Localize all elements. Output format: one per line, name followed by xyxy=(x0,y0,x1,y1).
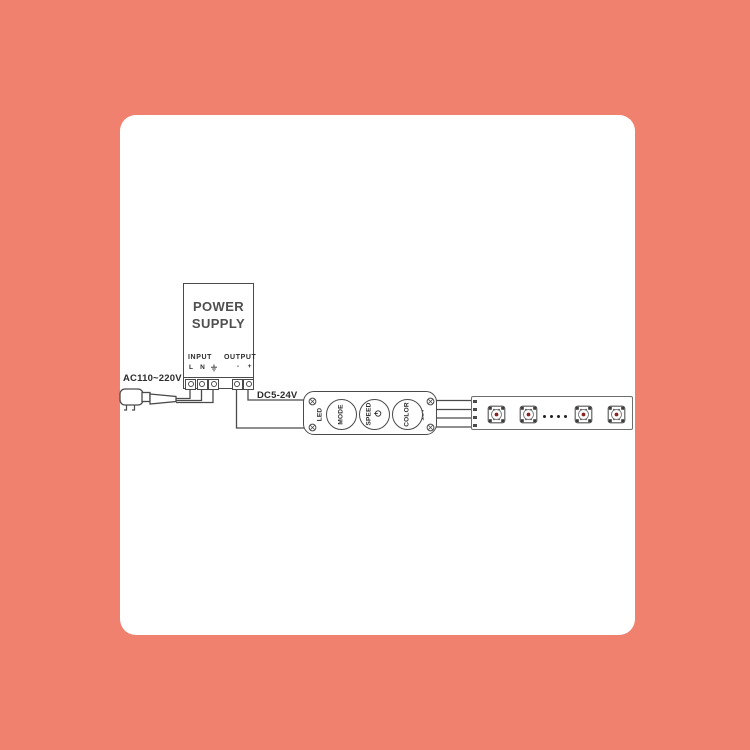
mode-button: MODE xyxy=(326,399,357,430)
terminal-n xyxy=(197,379,208,390)
terminal-l xyxy=(185,379,196,390)
led-strip xyxy=(471,396,633,430)
product-image-stage: POWER SUPPLY INPUT OUTPUT L N - + AC110~… xyxy=(0,0,750,750)
input-label: INPUT xyxy=(186,354,214,361)
ellipsis-dot xyxy=(550,415,553,418)
earth-ground-icon xyxy=(210,364,218,372)
strip-solder-pad xyxy=(473,400,477,403)
speed-button: SPEED xyxy=(359,399,390,430)
pin-label-n: N xyxy=(199,364,207,371)
pin-label-minus: - xyxy=(234,363,242,370)
pin-label-l: L xyxy=(187,364,195,371)
led-module xyxy=(519,405,538,424)
strip-solder-pad xyxy=(473,424,477,427)
led-controller: LED 12V MODE SPEED COLOR xyxy=(303,391,437,435)
ac-voltage-label: AC110~220V xyxy=(123,373,182,384)
terminal-ground xyxy=(208,379,219,390)
output-label: OUTPUT xyxy=(224,354,254,361)
power-supply-title: POWER SUPPLY xyxy=(184,299,253,333)
terminal-minus xyxy=(232,379,243,390)
terminal-plus xyxy=(243,379,254,390)
power-icon xyxy=(374,410,382,418)
power-supply-box: POWER SUPPLY INPUT OUTPUT L N - + xyxy=(183,283,254,389)
ellipsis-dot xyxy=(557,415,560,418)
led-module xyxy=(574,405,593,424)
strip-solder-pad xyxy=(473,408,477,411)
ellipsis-dot xyxy=(543,415,546,418)
led-module xyxy=(607,405,626,424)
strip-solder-pad xyxy=(473,416,477,419)
dc-voltage-label: DC5-24V xyxy=(257,390,297,401)
pin-label-plus: + xyxy=(246,363,254,370)
led-module xyxy=(487,405,506,424)
ellipsis-dot xyxy=(564,415,567,418)
color-button: COLOR xyxy=(392,399,423,430)
